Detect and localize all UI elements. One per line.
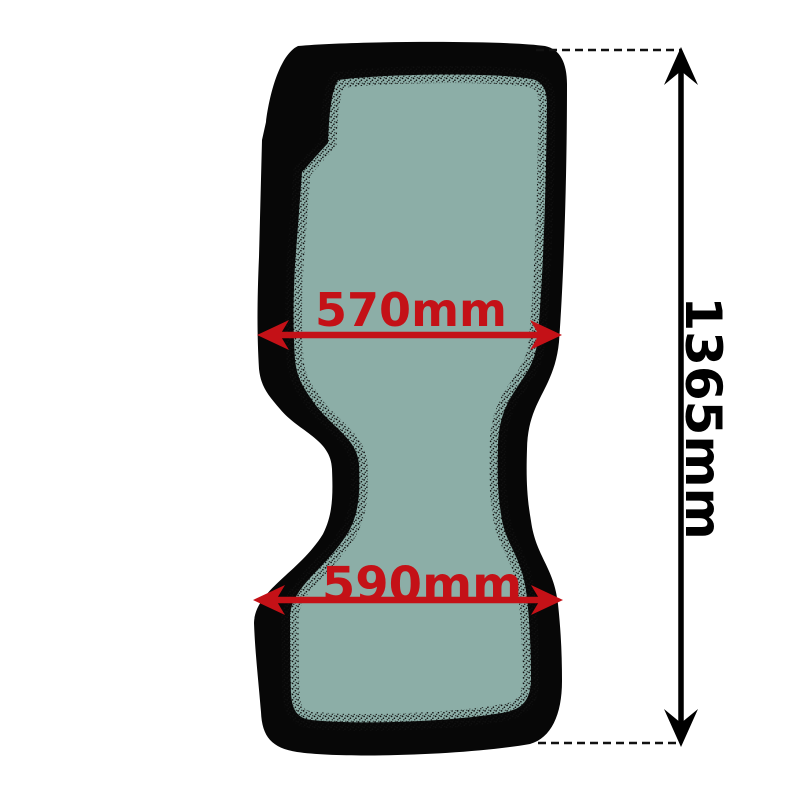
bottom-width-dimension-label: 590mm [322, 557, 522, 613]
glass-dimension-diagram: 1365mm 570mm 590mm [0, 0, 800, 800]
product-image: 1365mm 570mm 590mm [0, 0, 800, 800]
top-width-dimension-label: 570mm [315, 283, 507, 337]
height-dimension-label: 1365mm [674, 296, 732, 539]
